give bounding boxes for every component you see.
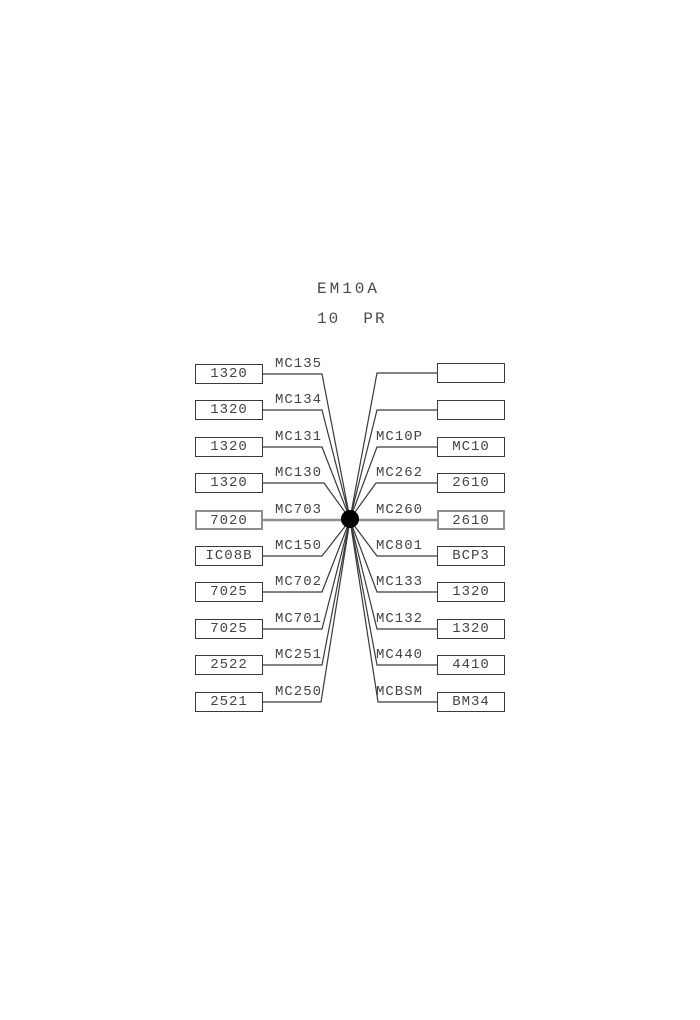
left-port-box-1: 1320 — [195, 364, 263, 384]
left-port-box-5: 7020 — [195, 510, 263, 530]
left-port-box-2: 1320 — [195, 400, 263, 420]
left-cable-label-2: MC134 — [270, 393, 322, 407]
right-cable-label-3: MC10P — [376, 430, 432, 444]
right-port-box-1 — [437, 363, 505, 383]
right-cable-label-6: MC801 — [376, 539, 432, 553]
left-cable-label-4: MC130 — [270, 466, 322, 480]
right-cable-label-5: MC260 — [376, 503, 432, 517]
right-port-box-9: 4410 — [437, 655, 505, 675]
right-cable-label-7: MC133 — [376, 575, 432, 589]
left-cable-label-7: MC702 — [270, 575, 322, 589]
left-cable-label-6: MC150 — [270, 539, 322, 553]
right-cable-label-4: MC262 — [376, 466, 432, 480]
wiring-diagram: EM10A 10 PR 1320 1320 1320 1320 7020 IC0… — [0, 0, 700, 1020]
right-port-box-2 — [437, 400, 505, 420]
right-port-box-7: 1320 — [437, 582, 505, 602]
left-port-box-9: 2522 — [195, 655, 263, 675]
hub-junction-dot — [341, 510, 359, 528]
right-cable-label-10: MCBSM — [376, 685, 432, 699]
right-port-box-8: 1320 — [437, 619, 505, 639]
right-port-box-6: BCP3 — [437, 546, 505, 566]
right-port-box-10: BM34 — [437, 692, 505, 712]
left-cable-label-10: MC250 — [270, 685, 322, 699]
diagram-subtitle: 10 PR — [317, 310, 387, 328]
left-port-box-8: 7025 — [195, 619, 263, 639]
left-cable-label-3: MC131 — [270, 430, 322, 444]
left-port-box-10: 2521 — [195, 692, 263, 712]
right-cable-label-8: MC132 — [376, 612, 432, 626]
left-port-box-6: IC08B — [195, 546, 263, 566]
left-cable-label-9: MC251 — [270, 648, 322, 662]
right-port-box-5: 2610 — [437, 510, 505, 530]
left-cable-label-8: MC701 — [270, 612, 322, 626]
right-port-box-4: 2610 — [437, 473, 505, 493]
connector-line — [350, 373, 437, 519]
left-port-box-7: 7025 — [195, 582, 263, 602]
connector-lines — [0, 0, 700, 1020]
left-cable-label-1: MC135 — [270, 357, 322, 371]
right-port-box-3: MC10 — [437, 437, 505, 457]
left-port-box-4: 1320 — [195, 473, 263, 493]
left-cable-label-5: MC703 — [270, 503, 322, 517]
diagram-title: EM10A — [317, 280, 380, 298]
left-port-box-3: 1320 — [195, 437, 263, 457]
right-cable-label-9: MC440 — [376, 648, 432, 662]
